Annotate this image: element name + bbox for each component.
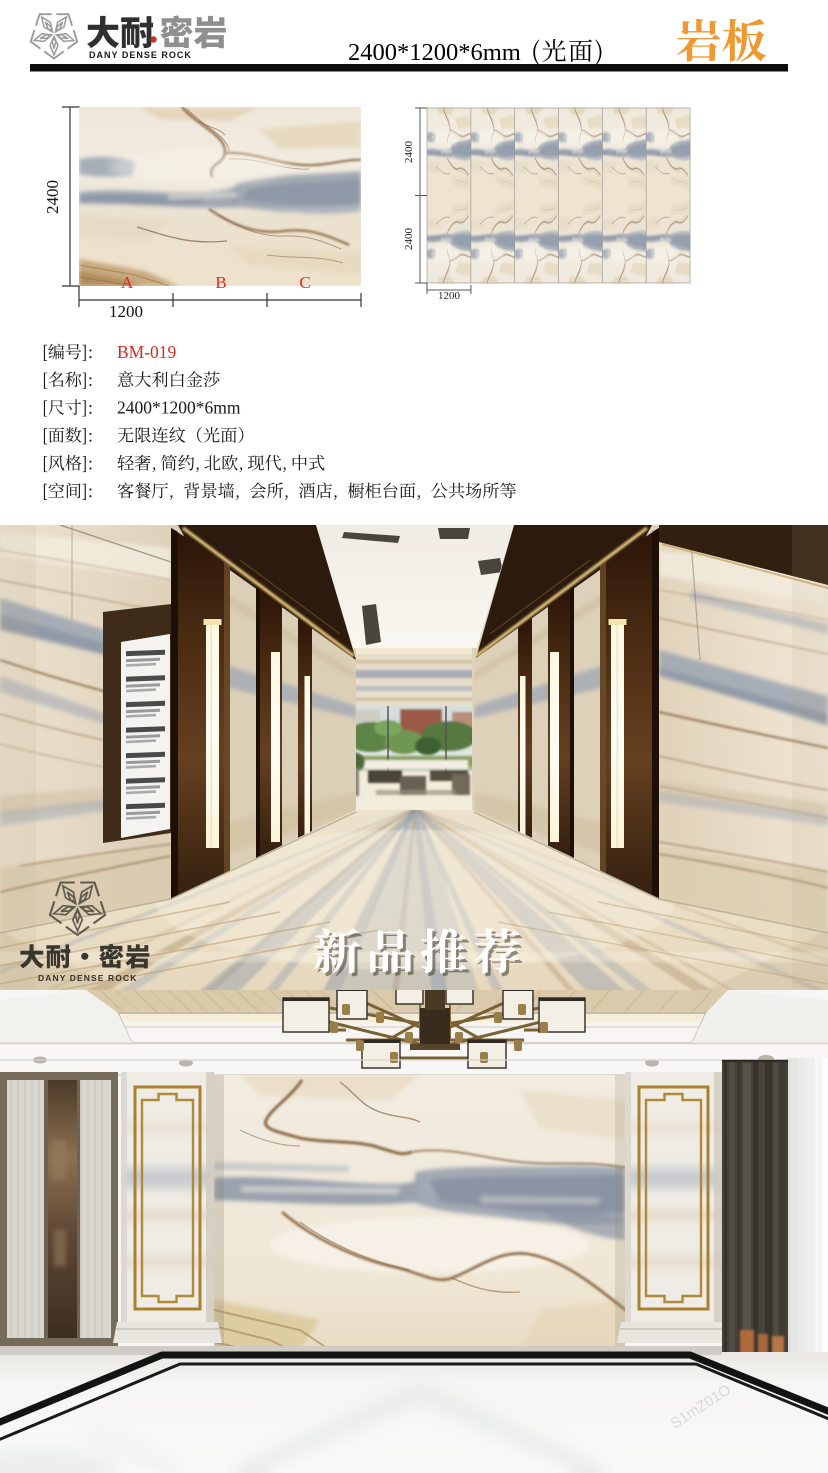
svg-text:DANY DENSE ROCK: DANY DENSE ROCK xyxy=(38,973,137,983)
svg-text:BM-019: BM-019 xyxy=(117,342,177,362)
svg-text:2400*1200*6mm: 2400*1200*6mm xyxy=(117,398,241,418)
svg-text:A: A xyxy=(121,273,134,292)
svg-text:2400: 2400 xyxy=(403,228,415,251)
svg-text:1200: 1200 xyxy=(109,302,143,321)
svg-text:2400*1200*6mm: 2400*1200*6mm xyxy=(348,39,521,66)
svg-text:2400: 2400 xyxy=(43,180,62,214)
svg-text:C: C xyxy=(299,273,310,292)
svg-text:DANY DENSE ROCK: DANY DENSE ROCK xyxy=(89,50,192,60)
svg-text:2400: 2400 xyxy=(403,141,415,164)
svg-text:B: B xyxy=(215,273,226,292)
svg-text:1200: 1200 xyxy=(438,290,461,302)
